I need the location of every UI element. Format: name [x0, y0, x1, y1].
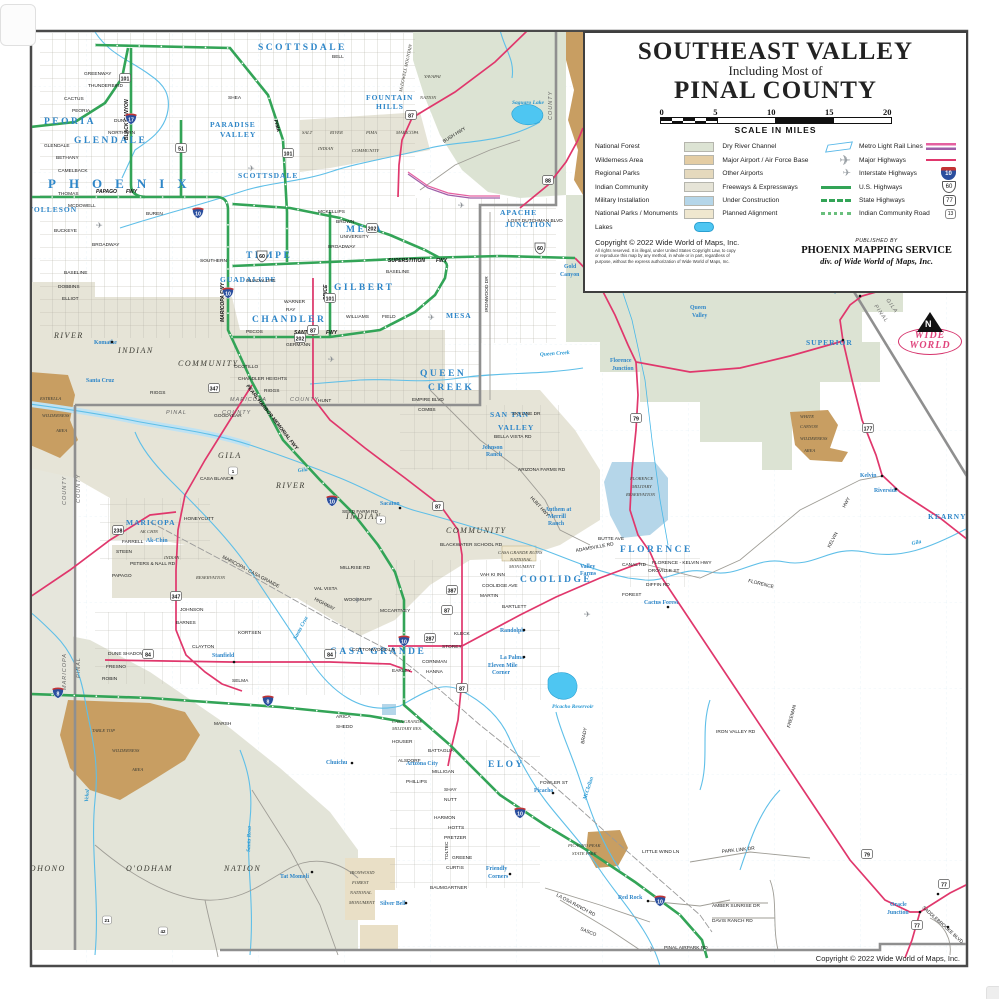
map-label-town: Ak-Chin — [146, 538, 168, 544]
map-label-area-sm: IRONWOOD — [349, 870, 375, 875]
shield-state-387: 387 — [447, 586, 458, 595]
map-label-water: Gila — [298, 467, 309, 474]
map-label-city-md: APACHE — [500, 208, 537, 217]
map-label-street: RIGGS — [264, 388, 279, 394]
map-label-street: SHEA — [228, 95, 242, 101]
map-label-street: SELMA — [232, 678, 249, 684]
scale-segment — [833, 118, 891, 123]
legend-label: Wilderness Area — [595, 157, 643, 164]
map-label-street: SKYLINE DR — [512, 411, 541, 417]
map-label-street: SOUTHERN — [200, 258, 227, 264]
map-label-street: MCCARTNEY — [380, 608, 411, 614]
map-label-area-sm: AREA — [55, 428, 67, 433]
map-label-town: Ranch — [548, 521, 565, 527]
map-label-water: Saguaro Lake — [512, 100, 544, 106]
settlement-dot — [233, 661, 236, 664]
map-label-street: FARRELL — [122, 539, 144, 545]
svg-text:88: 88 — [545, 178, 551, 184]
settlement-dot — [895, 488, 898, 491]
map-label-street: PINAL AIRPARK RD — [664, 945, 708, 951]
svg-text:10: 10 — [517, 812, 523, 818]
legend-column-highways: Metro Light Rail LinesMajor HighwaysInte… — [859, 140, 956, 234]
map-label-street: PAPAGO — [112, 573, 132, 579]
legend-label: Indian Community — [595, 184, 648, 191]
legend-item: Planned Alignment — [722, 207, 851, 220]
map-label-street: STOREY — [442, 644, 462, 650]
shield-state-101: 101 — [325, 294, 336, 303]
map-label-street: PEORIA — [72, 108, 91, 114]
settlement-dot — [351, 762, 354, 765]
legend-label: Other Airports — [722, 170, 763, 177]
map-label-area-sm: INDIAN — [163, 555, 180, 560]
svg-text:77: 77 — [914, 923, 920, 929]
legend-item: Under Construction — [722, 194, 851, 207]
settlement-dot — [552, 792, 555, 795]
map-label-street: HUNT — [318, 398, 331, 404]
map-label-plane: ✈ — [248, 164, 255, 173]
shield-state-177: 177 — [863, 424, 874, 433]
legend-swatch-forest-icon — [684, 142, 714, 152]
map-label-area-sm: RESERVATION — [195, 575, 226, 580]
map-label-town: Sacaton — [380, 501, 400, 507]
svg-text:287: 287 — [426, 636, 435, 642]
map-label-street: OROVILLE ST — [648, 568, 680, 574]
map-label-street: BASELINE — [386, 269, 409, 275]
map-label-area-sm: MONUMENT — [508, 564, 535, 569]
shield-state-101: 101 — [120, 74, 131, 83]
map-label-area-sm: STATE PARK — [572, 851, 597, 856]
map-label-street: WARNER — [284, 299, 306, 305]
map-label-area: NATION — [223, 864, 261, 873]
map-label-street: BARNES — [176, 620, 196, 626]
svg-text:79: 79 — [633, 416, 639, 422]
map-label-town: Junction — [612, 366, 634, 372]
map-label-city-lg: CREEK — [428, 383, 474, 393]
map-label-area-sm: WILDERNESS — [42, 413, 70, 418]
map-label-town: Farms — [580, 571, 597, 577]
map-label-area: GILA — [218, 451, 242, 460]
legend-item: Indian Community — [595, 180, 714, 193]
map-label-street: DOBBINS — [58, 284, 80, 290]
map-label-city-lg: QUEEN — [420, 369, 466, 379]
publisher-name: PHOENIX MAPPING SERVICE — [797, 245, 956, 256]
scale-tick: 20 — [883, 107, 892, 117]
map-label-street: HARMON — [434, 815, 456, 821]
legend-swatch-military-icon — [684, 196, 714, 206]
legend-swatch-shield-indian-icon: 13 — [945, 209, 956, 219]
map-label-area-sm: ESTRELLA — [39, 396, 61, 401]
map-label-fwy: FWY — [126, 189, 138, 195]
screenshot-artifact — [986, 986, 999, 999]
legend-label: Planned Alignment — [722, 210, 777, 217]
map-label-street: ELLIOT — [62, 296, 79, 302]
map-label-plane: ✈ — [96, 221, 103, 230]
map-label-city-md: FOUNTAIN — [366, 93, 413, 102]
map-label-plane: ✈ — [428, 313, 435, 322]
shield-state-77: 77 — [912, 921, 923, 930]
map-label-town: La Palma — [500, 655, 524, 661]
map-label-street: MCDOWELL — [68, 203, 96, 209]
svg-text:87: 87 — [435, 504, 441, 510]
map-label-town: Merrill — [548, 514, 566, 520]
svg-text:84: 84 — [145, 652, 151, 658]
svg-text:87: 87 — [444, 608, 450, 614]
map-label-street: PETERS & NALL RD — [130, 561, 176, 567]
map-label-street: BETHANY — [56, 155, 79, 161]
legend-item: State Highways77 — [859, 194, 956, 207]
settlement-dot — [842, 339, 845, 342]
map-label-city-md: MARICOPA — [126, 518, 176, 527]
map-label-street: BROADWAY — [328, 244, 356, 250]
shield-state-202: 202 — [295, 334, 306, 343]
legend-swatch-freeway-icon — [821, 186, 851, 189]
shield-state-84: 84 — [325, 650, 336, 659]
map-label-street: RAY — [286, 307, 296, 313]
map-label-area-sm: MILITARY — [631, 484, 652, 489]
map-label-town: Kelvin — [860, 473, 877, 479]
map-label-street: KLECK — [454, 631, 471, 637]
map-label-city-lg: SCOTTSDALE — [258, 43, 347, 53]
settlement-dot — [405, 902, 408, 905]
map-label-area-sm: MONUMENT — [348, 900, 375, 905]
map-label-area-sm: MARICOPA — [395, 130, 419, 135]
map-label-street: MILLIGAN — [432, 769, 455, 775]
legend-swatch-planned-icon — [821, 212, 851, 215]
map-label-street: BASELINE — [64, 270, 87, 276]
svg-text:238: 238 — [114, 528, 123, 534]
legend-label: Regional Parks — [595, 170, 640, 177]
map-label-area: RIVER — [275, 481, 306, 490]
svg-text:202: 202 — [296, 336, 305, 342]
map-label-street: MILLRISE RD — [340, 565, 371, 571]
map-label-area-sm: FLORENCE — [629, 476, 653, 481]
legend-label: Interstate Highways — [859, 170, 917, 177]
map-label-area-sm: MILITARY RES. — [391, 726, 422, 731]
svg-text:87: 87 — [310, 328, 316, 334]
map-label-street: ARICA — [336, 714, 351, 720]
map-label-city-md: VALLEY — [220, 130, 256, 139]
map-label-street: STEEN — [116, 549, 133, 555]
legend-swatch-shield-us-icon: 60 — [942, 181, 956, 193]
scale-caption: SCALE IN MILES — [660, 125, 892, 135]
map-label-town: Stanfield — [212, 653, 235, 659]
svg-text:202: 202 — [368, 226, 377, 232]
svg-text:101: 101 — [121, 76, 130, 82]
map-label-street: EARLEY — [392, 668, 412, 674]
shield-indian-7: 7 — [377, 516, 386, 524]
map-label-area-sm: CASA GRANDE RUINS — [498, 550, 543, 555]
scale-tick: 10 — [767, 107, 776, 117]
map-label-street: WILLIAMS — [346, 314, 369, 320]
map-label-fwy: PAPAGO — [96, 189, 117, 195]
legend-column-features: Dry River ChannelMajor Airport / Air For… — [722, 140, 851, 234]
svg-text:10: 10 — [401, 640, 407, 646]
map-label-area-sm: YAVAPAI — [424, 74, 441, 79]
map-label-street: TOLTEC — [444, 841, 450, 860]
map-label-street: LOST DUTCHMAN BLVD — [508, 218, 563, 224]
legend-label: Metro Light Rail Lines — [859, 143, 923, 150]
map-label-town: Chuichu — [326, 760, 348, 766]
map-label-street: CURTIS — [446, 865, 464, 871]
legend-swatch-shield-state-icon: 77 — [943, 195, 956, 206]
map-label-street: GREENWAY — [84, 71, 112, 77]
map-title: SOUTHEAST VALLEY — [595, 39, 956, 64]
map-label-street: ARIZONA FARMS RD — [518, 467, 566, 473]
shield-state-77: 77 — [939, 880, 950, 889]
map-label-street: AMBER SUNRISE DR — [712, 903, 761, 909]
map-label-city-md: HILLS — [376, 102, 404, 111]
map-label-town: Valley — [692, 313, 707, 319]
map-label-street: CASA BLANCA — [200, 476, 234, 482]
legend-swatch-regional-icon — [684, 169, 714, 179]
map-label-street: BAUMGARTNER — [430, 885, 468, 891]
map-label-county: COUNTY — [76, 474, 82, 503]
map-label-street: HOUSER — [392, 739, 413, 745]
map-label-plane: ✈ — [328, 355, 335, 364]
legend-swatch-highway-icon — [926, 159, 956, 161]
map-label-street: COMBS — [418, 407, 436, 413]
map-label-street: MARSH — [214, 721, 232, 727]
legend-swatch-wilderness-icon — [684, 155, 714, 165]
svg-text:87: 87 — [408, 113, 414, 119]
svg-text:84: 84 — [327, 652, 333, 658]
map-label-street: BROADWAY — [92, 242, 120, 248]
title-legend-box: SOUTHEAST VALLEY Including Most of PINAL… — [583, 31, 968, 293]
map-label-street: FLORENCE - KELVIN HWY — [652, 560, 712, 566]
legend-label: Freeways & Expressways — [722, 184, 797, 191]
svg-text:347: 347 — [172, 594, 181, 600]
map-label-street: GLENDALE — [44, 143, 70, 149]
svg-text:87: 87 — [459, 686, 465, 692]
legend-swatch-indian-icon — [684, 182, 714, 192]
svg-text:79: 79 — [864, 852, 870, 858]
screenshot-artifact — [0, 4, 36, 46]
map-label-town: Corners — [488, 874, 509, 880]
map-title2: PINAL COUNTY — [595, 78, 956, 103]
map-label-city-lg: FLORENCE — [620, 545, 693, 555]
map-label-city-md: MESA — [446, 311, 472, 320]
map-label-street: JOHNSON — [180, 607, 204, 613]
legend-label: U.S. Highways — [859, 184, 902, 191]
map-label-area-sm: SALT — [302, 130, 313, 135]
svg-text:60: 60 — [259, 254, 265, 260]
map-label-town: Riverside — [874, 488, 898, 494]
map-label-county: COUNTY — [290, 397, 319, 403]
svg-text:10: 10 — [657, 900, 663, 906]
map-label-town: Oracle — [890, 902, 907, 908]
map-label-area-sm: AREA — [131, 767, 143, 772]
shield-state-347: 347 — [209, 384, 220, 393]
map-label-street: CAMELBACK — [58, 168, 88, 174]
map-label-street: CACTUS — [64, 96, 84, 102]
map-label-water: Santa Rosa — [246, 826, 253, 852]
legend-item: Metro Light Rail Lines — [859, 140, 956, 153]
publisher-division: div. of Wide World of Maps, Inc. — [797, 256, 956, 266]
legend: National ForestWilderness AreaRegional P… — [595, 140, 956, 234]
shield-state-202: 202 — [367, 224, 378, 233]
map-label-street: CORNMAN — [422, 659, 447, 665]
map-label-area-sm: RIVER — [329, 130, 343, 135]
map-label-town: Ranch — [486, 452, 503, 458]
scale-bar-graphic — [660, 117, 892, 124]
map-label-street: GERMANN — [286, 342, 311, 348]
legend-swatch-monument-icon — [684, 209, 714, 219]
legend-swatch-lake-icon — [694, 222, 714, 232]
svg-text:10: 10 — [225, 292, 231, 298]
legend-item: Lakes — [595, 221, 714, 234]
shield-state-238: 238 — [113, 526, 124, 535]
settlement-dot — [919, 911, 922, 914]
map-label-city-md: PARADISE — [210, 120, 256, 129]
shield-state-87: 87 — [433, 502, 444, 511]
map-label-street: BLACKWATER SCHOOL RD — [440, 542, 503, 548]
scale-ticks: 05101520 — [660, 107, 892, 117]
shield-state-88: 88 — [543, 176, 554, 185]
legend-item: Wilderness Area — [595, 154, 714, 167]
map-label-street: IRONWOOD DR — [484, 276, 490, 312]
settlement-dot — [399, 507, 402, 510]
map-label-town: Tat Momoli — [280, 874, 309, 880]
map-label-street: RIGGS — [150, 390, 165, 396]
wide-world-logo: N WIDE WORLD — [898, 312, 962, 364]
map-label-city-lg: ELOY — [488, 760, 525, 770]
map-label-street: SHEDD — [336, 724, 353, 730]
map-label-fwy: SUPERSTITION — [388, 258, 425, 264]
svg-text:17: 17 — [128, 118, 134, 124]
legend-label: Indian Community Road — [859, 210, 930, 217]
map-label-street: VAH KI INN — [480, 572, 506, 578]
map-label-town: Randolph — [500, 628, 525, 634]
map-label-town: Cactus Forest — [644, 600, 678, 606]
map-label-city-lg: GLENDALE — [74, 136, 147, 146]
svg-text:347: 347 — [210, 386, 219, 392]
svg-text:42: 42 — [161, 929, 166, 934]
legend-label: National Forest — [595, 143, 640, 150]
map-label-town: Silver Bell — [380, 901, 406, 907]
settlement-dot — [523, 629, 526, 632]
map-label-city-md: VALLEY — [498, 423, 534, 432]
map-label-street: PECOS — [246, 329, 263, 335]
map-label-town: Gold — [564, 264, 577, 270]
settlement-dot — [647, 900, 650, 903]
svg-text:177: 177 — [864, 426, 873, 432]
map-label-street: CLAYTON — [192, 644, 215, 650]
legend-label: National Parks / Monuments — [595, 210, 678, 217]
shield-state-79: 79 — [631, 414, 642, 423]
map-label-street: BELLA VISTA RD — [494, 434, 532, 440]
map-label-water: Vekol — [84, 789, 91, 802]
legend-swatch-plane-small-icon: ✈ — [843, 169, 851, 179]
logo-line2: WORLD — [899, 341, 961, 351]
svg-text:387: 387 — [448, 588, 457, 594]
legend-swatch-dryriver-icon — [825, 141, 853, 152]
map-label-street: SEED FARM RD — [342, 509, 379, 515]
map-label-area-sm: COMMUNITY — [352, 148, 380, 153]
legend-item: Indian Community Road13 — [859, 207, 956, 220]
map-label-street: EMPIRE BLVD — [412, 397, 444, 403]
settlement-dot — [231, 477, 234, 480]
shield-state-84: 84 — [143, 650, 154, 659]
map-label-plane: ✈ — [584, 610, 591, 619]
map-label-street: SHAY — [444, 787, 458, 793]
map-label-area-sm: AREA — [803, 448, 815, 453]
map-label-street: COTTONWOOD LN — [352, 647, 396, 653]
legend-swatch-plane-large-icon: ✈ — [839, 155, 851, 165]
map-label-street: LITTLE WIND LN — [642, 849, 680, 855]
map-label-town: Junction — [887, 910, 909, 916]
map-label-street: ALSDORF — [398, 758, 421, 764]
shield-state-87: 87 — [406, 111, 417, 120]
map-label-city-lg: TEMPE — [246, 251, 292, 261]
map-label-area-sm: AK CHIN — [139, 529, 159, 534]
map-label-fwy: FWY — [326, 330, 338, 336]
shield-indian-1: 1 — [229, 467, 238, 475]
copyright-title: Copyright © 2022 Wide World of Maps, Inc… — [595, 238, 797, 247]
map-label-town: Picacho — [534, 788, 553, 794]
scale-bar: 05101520 SCALE IN MILES — [660, 107, 892, 135]
map-label-street: PHILLIPS — [406, 779, 427, 785]
map-label-area: COMMUNITY — [446, 526, 507, 535]
legend-column-areas: National ForestWilderness AreaRegional P… — [595, 140, 714, 234]
settlement-dot — [937, 893, 940, 896]
map-label-area-sm: NATIONAL — [509, 557, 532, 562]
map-page: PHOENIXPEORIAGLENDALESCOTTSDALESCOTTSDAL… — [0, 0, 999, 999]
svg-text:77: 77 — [941, 882, 947, 888]
shield-state-101: 101 — [283, 149, 294, 158]
svg-text:10: 10 — [195, 212, 201, 218]
shield-state-347: 347 — [171, 592, 182, 601]
legend-swatch-shield-interstate-icon: 10 — [941, 167, 956, 180]
map-label-street: OCOTILLO — [234, 364, 259, 370]
map-label-street: FRESNO — [106, 664, 126, 670]
map-label-street: HOTTS — [448, 825, 464, 831]
published-by-label: PUBLISHED BY — [797, 238, 956, 244]
legend-item: U.S. Highways60 — [859, 180, 956, 193]
settlement-dot — [667, 606, 670, 609]
svg-text:10: 10 — [329, 500, 335, 506]
svg-text:101: 101 — [326, 296, 335, 302]
scale-segment — [717, 118, 775, 123]
scale-tick: 0 — [660, 107, 664, 117]
scale-segment — [775, 118, 833, 123]
svg-text:60: 60 — [537, 246, 543, 252]
map-label-area-sm: INDIAN — [317, 146, 334, 151]
map-label-street: MARTIN — [480, 593, 499, 599]
map-label-area-sm: CANYON — [800, 424, 819, 429]
shield-indian-21: 21 — [103, 916, 112, 924]
map-label-street: GUADALUPE — [246, 278, 276, 284]
map-label-area-sm: NATION — [419, 95, 437, 100]
map-label-street: HANNA — [426, 669, 444, 675]
map-subtitle: Including Most of — [595, 64, 956, 78]
map-label-town: Santa Cruz — [86, 378, 115, 384]
map-label-town: Queen — [690, 305, 707, 311]
shield-state-287: 287 — [425, 634, 436, 643]
map-label-street: UNIVERSITY — [340, 234, 370, 240]
legend-item: Major Highways — [859, 154, 956, 167]
map-label-street: CANAL RD — [622, 562, 647, 568]
legend-item: National Forest — [595, 140, 714, 153]
map-label-city-lg: PEORIA — [44, 117, 96, 127]
legend-item: Dry River Channel — [722, 140, 851, 153]
map-label-street: KORTSEN — [238, 630, 262, 636]
legend-item: Major Airport / Air Force Base✈ — [722, 154, 851, 167]
map-label-street: BUREN — [146, 211, 163, 217]
settlement-dot — [881, 475, 884, 478]
map-label-street: COOLIDGE AVE — [482, 583, 518, 589]
settlement-dot — [311, 871, 314, 874]
map-label-street: MCKELLIPS — [318, 209, 345, 215]
